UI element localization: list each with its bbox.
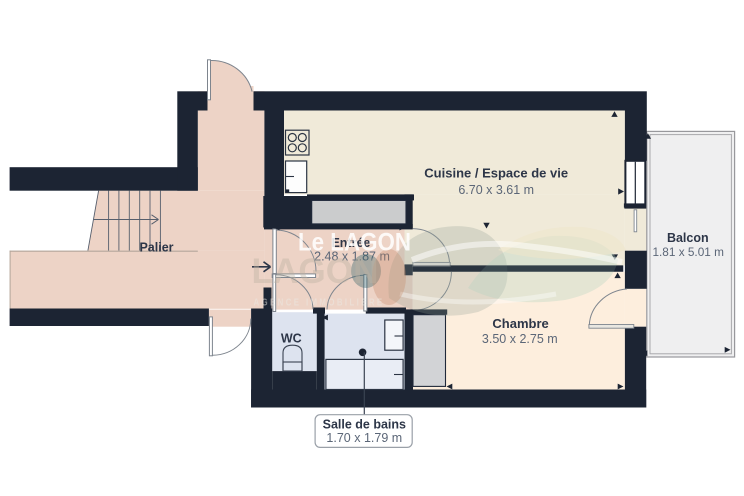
svg-text:3.50 x 2.75 m: 3.50 x 2.75 m (482, 332, 558, 346)
svg-text:Balcon: Balcon (667, 231, 709, 245)
svg-text:1.70 x 1.79 m: 1.70 x 1.79 m (326, 431, 402, 445)
svg-text:Salle de bains: Salle de bains (323, 418, 406, 432)
svg-text:1.81 x 5.01 m: 1.81 x 5.01 m (652, 245, 724, 259)
svg-text:Cuisine / Espace de vie: Cuisine / Espace de vie (424, 166, 568, 181)
svg-text:Chambre: Chambre (492, 316, 548, 331)
svg-text:Palier: Palier (139, 241, 173, 255)
svg-text:WC: WC (281, 332, 302, 346)
svg-text:LAGON: LAGON (252, 252, 379, 291)
svg-text:AGENCE IMMOBILIERE: AGENCE IMMOBILIERE (254, 298, 385, 309)
svg-text:6.70 x 3.61 m: 6.70 x 3.61 m (458, 183, 534, 197)
